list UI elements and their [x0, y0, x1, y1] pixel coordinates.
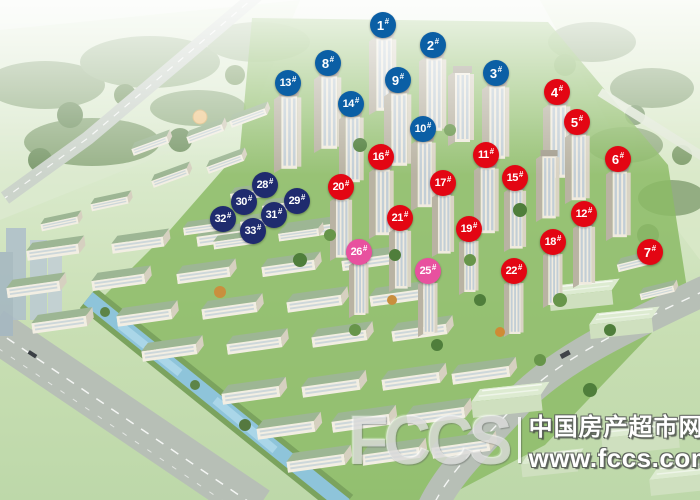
site-name: 中国房产超市网 — [529, 407, 700, 442]
building-marker-18: 18# — [540, 229, 566, 255]
building-marker-25: 25# — [415, 258, 441, 284]
building-marker-17: 17# — [430, 170, 456, 196]
building-marker-2: 2# — [420, 32, 446, 58]
building-marker-33: 33# — [240, 218, 266, 244]
building-marker-9: 9# — [385, 67, 411, 93]
building-marker-10: 10# — [410, 116, 436, 142]
fccs-watermark: FCCS 中国房产超市网 www.fccs.com — [348, 402, 700, 478]
building-marker-21: 21# — [387, 205, 413, 231]
watermark-text: 中国房产超市网 www.fccs.com — [529, 407, 700, 474]
building-marker-22: 22# — [501, 258, 527, 284]
building-marker-7: 7# — [637, 239, 663, 265]
building-marker-16: 16# — [368, 144, 394, 170]
building-marker-4: 4# — [544, 79, 570, 105]
building-marker-15: 15# — [502, 165, 528, 191]
building-marker-5: 5# — [564, 109, 590, 135]
watermark-divider-line — [518, 417, 521, 463]
building-marker-1: 1# — [370, 12, 396, 38]
building-marker-26: 26# — [346, 239, 372, 265]
building-marker-8: 8# — [315, 50, 341, 76]
building-marker-31: 31# — [261, 202, 287, 228]
building-marker-3: 3# — [483, 60, 509, 86]
building-marker-13: 13# — [275, 70, 301, 96]
aerial-masterplan-render: 1#2#3#4#5#6#7#8#9#10#11#12#13#14#15#16#1… — [0, 0, 700, 500]
building-marker-29: 29# — [284, 188, 310, 214]
fccs-logo: FCCS — [348, 400, 508, 480]
building-marker-20: 20# — [328, 174, 354, 200]
building-marker-14: 14# — [338, 91, 364, 117]
building-marker-12: 12# — [571, 201, 597, 227]
building-marker-30: 30# — [231, 189, 257, 215]
building-marker-28: 28# — [252, 172, 278, 198]
building-marker-19: 19# — [456, 216, 482, 242]
building-marker-11: 11# — [473, 142, 499, 168]
building-marker-6: 6# — [605, 146, 631, 172]
building-marker-32: 32# — [210, 206, 236, 232]
site-url: www.fccs.com — [529, 443, 700, 474]
